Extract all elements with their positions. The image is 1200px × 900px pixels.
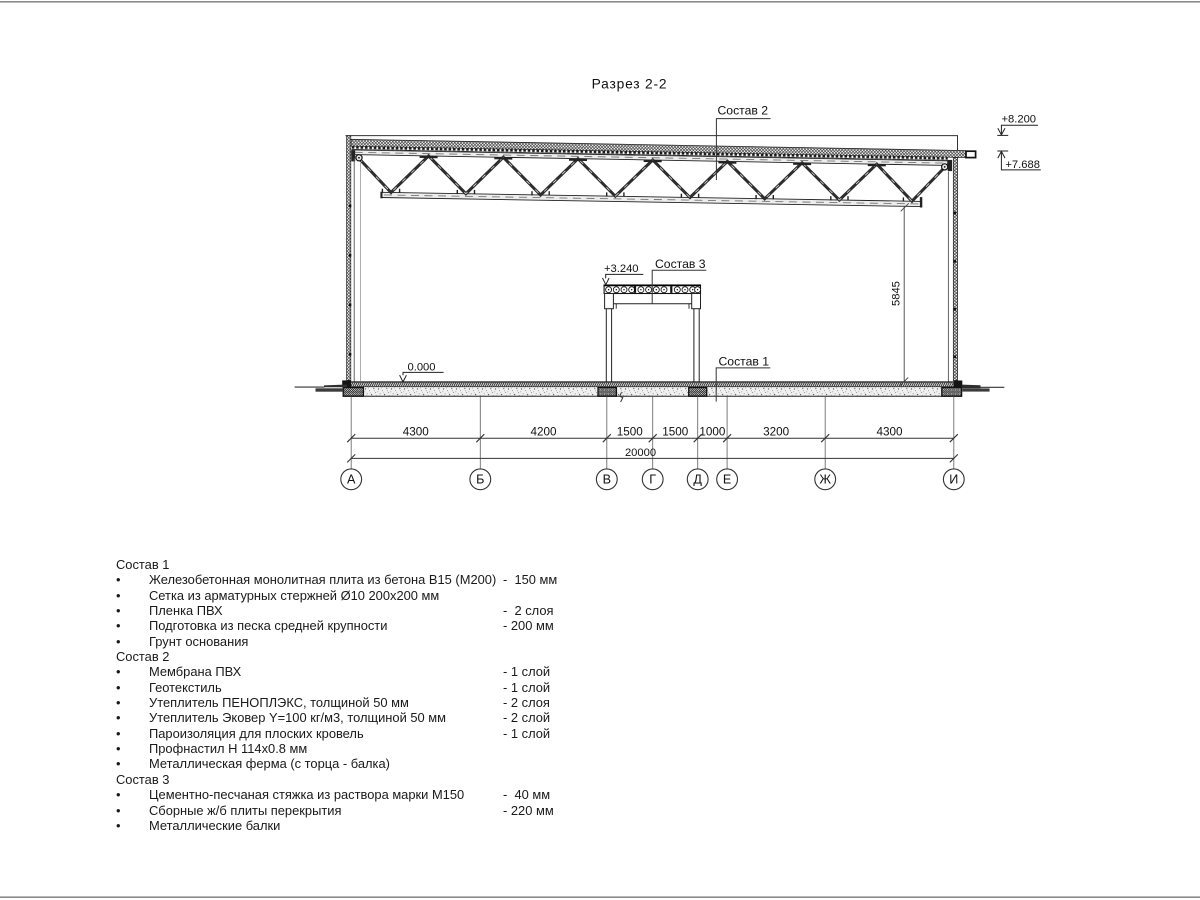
svg-text:+3.240: +3.240 [604,263,639,275]
svg-text:Г: Г [649,473,656,487]
svg-text:0.000: 0.000 [408,361,436,373]
svg-text:+8.200: +8.200 [1002,113,1037,125]
svg-text:+7.688: +7.688 [1005,159,1040,171]
svg-text:4300: 4300 [876,426,903,439]
svg-text:В: В [603,473,611,487]
svg-text:Разрез 2-2: Разрез 2-2 [592,77,668,92]
svg-text:1500: 1500 [617,426,644,439]
svg-text:Состав 1: Состав 1 [719,354,770,368]
svg-text:1000: 1000 [699,426,726,439]
svg-text:4200: 4200 [530,426,557,439]
svg-text:И: И [949,473,958,487]
svg-text:5845: 5845 [891,281,903,306]
svg-text:А: А [347,473,356,487]
svg-text:Состав 3: Состав 3 [655,257,706,271]
svg-text:Б: Б [476,473,484,487]
svg-text:3200: 3200 [763,426,790,439]
svg-text:Д: Д [693,473,702,487]
svg-text:Е: Е [723,473,731,487]
svg-text:Состав 2: Состав 2 [718,104,769,118]
svg-text:1500: 1500 [662,426,689,439]
svg-text:4300: 4300 [403,426,430,439]
svg-text:Ж: Ж [819,473,831,487]
svg-text:20000: 20000 [625,447,656,459]
